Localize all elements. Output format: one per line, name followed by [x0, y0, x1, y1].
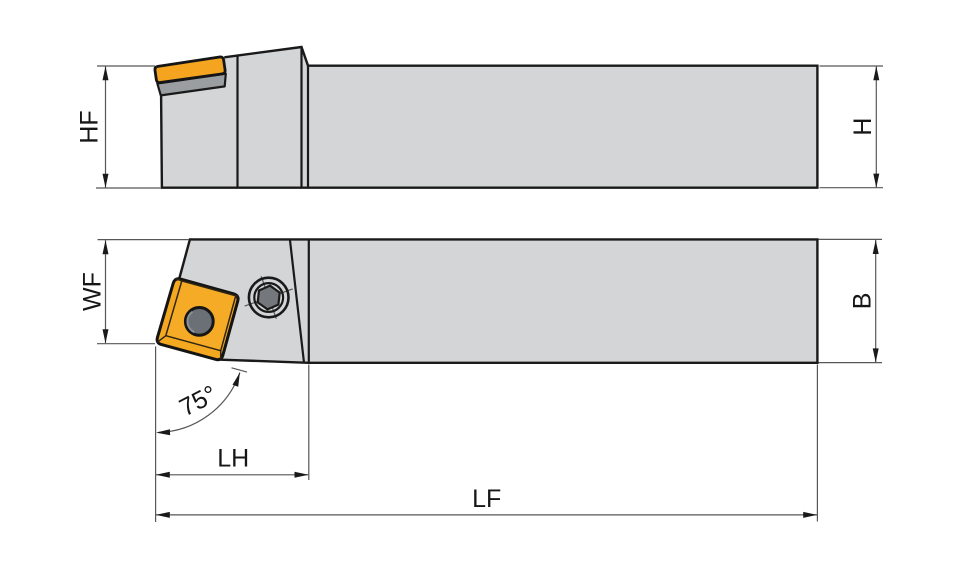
svg-text:LH: LH — [217, 444, 249, 472]
svg-text:LF: LF — [472, 485, 501, 513]
svg-text:WF: WF — [79, 272, 107, 311]
svg-text:H: H — [849, 118, 877, 136]
svg-text:B: B — [848, 293, 876, 310]
svg-text:HF: HF — [76, 110, 104, 143]
